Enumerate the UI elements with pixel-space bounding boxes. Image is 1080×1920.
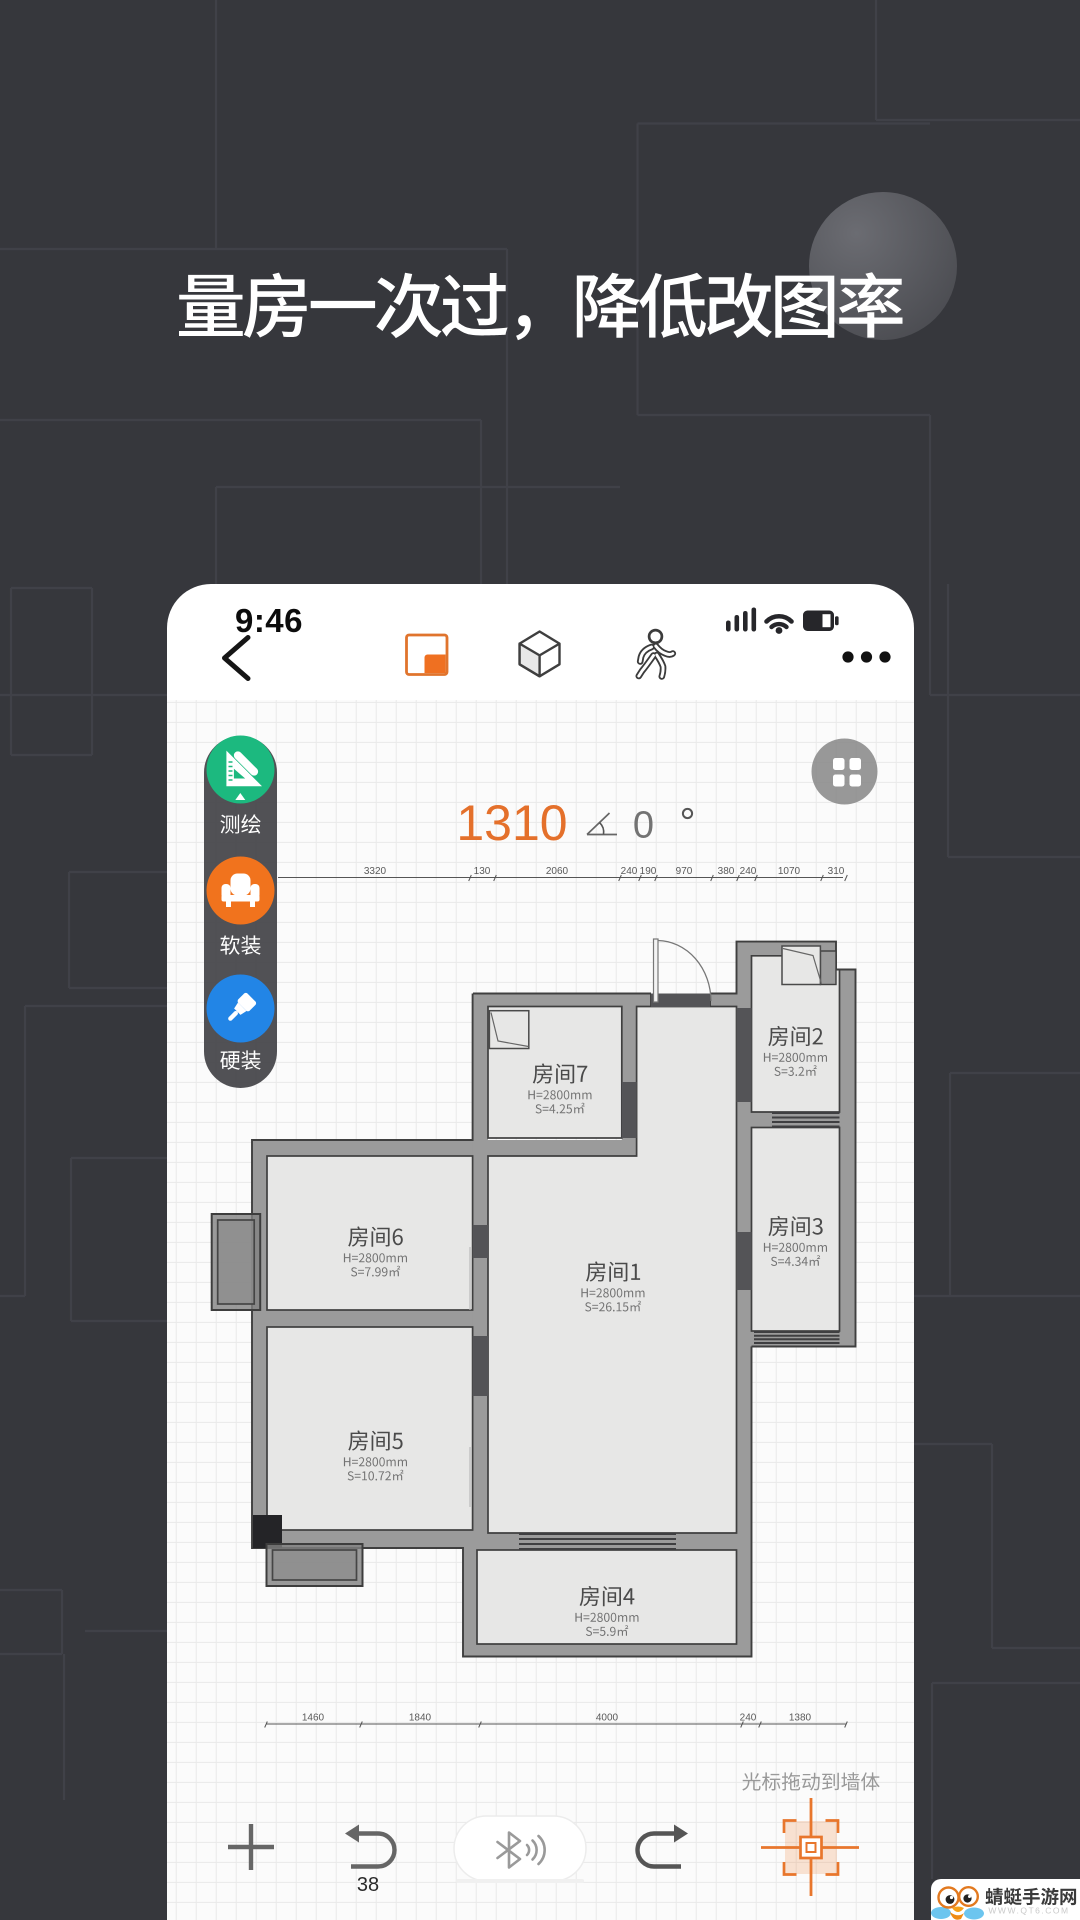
svg-text:310: 310 [828,866,845,877]
svg-text:2060: 2060 [546,866,569,877]
svg-text:1070: 1070 [778,866,801,877]
svg-text:WWW.QT6.COM: WWW.QT6.COM [988,1906,1069,1916]
svg-text:1460: 1460 [302,1713,325,1724]
svg-text:1840: 1840 [409,1713,432,1724]
svg-text:0: 0 [633,805,654,847]
svg-text:240: 240 [621,866,638,877]
svg-text:1380: 1380 [789,1713,812,1724]
svg-text:130: 130 [474,866,491,877]
svg-text:3320: 3320 [364,866,387,877]
svg-text:9:46: 9:46 [235,602,303,639]
svg-text:38: 38 [357,1874,379,1896]
svg-text:240: 240 [740,866,757,877]
svg-text:380: 380 [718,866,735,877]
svg-text:1310: 1310 [456,795,567,851]
svg-text:970: 970 [676,866,693,877]
svg-text:4000: 4000 [596,1713,619,1724]
svg-text:190: 190 [640,866,657,877]
svg-text:240: 240 [740,1713,757,1724]
